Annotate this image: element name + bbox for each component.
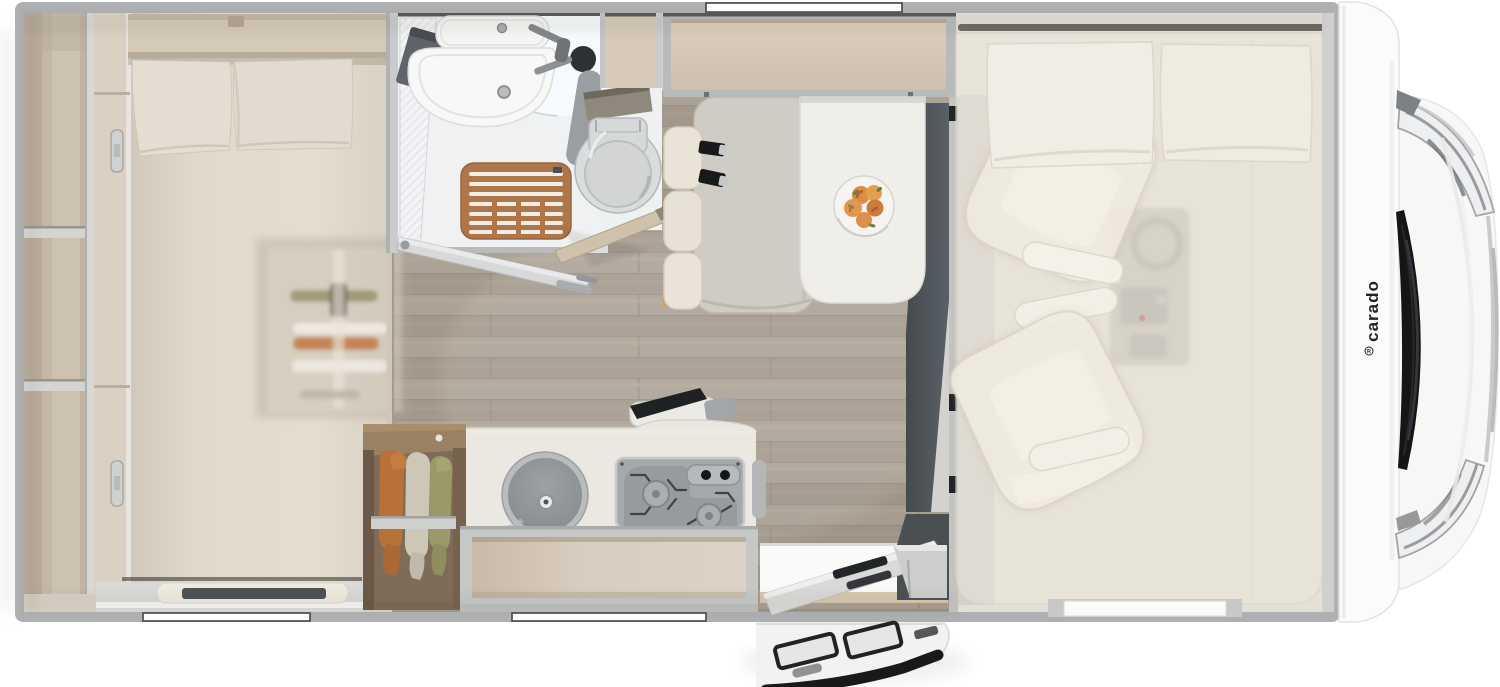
svg-text:R: R — [1367, 349, 1371, 355]
svg-text:carado: carado — [1363, 280, 1382, 342]
